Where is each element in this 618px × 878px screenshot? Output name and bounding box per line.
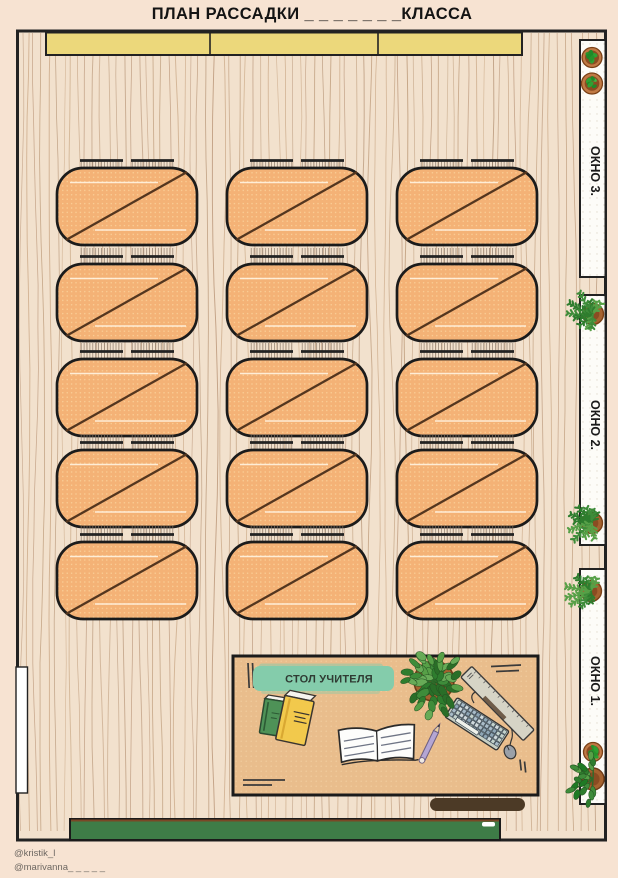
svg-text:ПЛАН РАССАДКИ _ _ _ _ _ _ _КЛА: ПЛАН РАССАДКИ _ _ _ _ _ _ _КЛАССА [152, 5, 473, 23]
svg-text:@kristik_l: @kristik_l [14, 848, 55, 859]
svg-text:ОКНО 2.: ОКНО 2. [588, 400, 602, 450]
svg-text:ОКНО 3.: ОКНО 3. [588, 146, 602, 196]
svg-text:СТОЛ УЧИТЕЛЯ: СТОЛ УЧИТЕЛЯ [285, 674, 373, 686]
svg-text:@marivanna_ _ _ _ _: @marivanna_ _ _ _ _ [14, 862, 106, 873]
svg-text:ОКНО 1.: ОКНО 1. [588, 656, 602, 706]
